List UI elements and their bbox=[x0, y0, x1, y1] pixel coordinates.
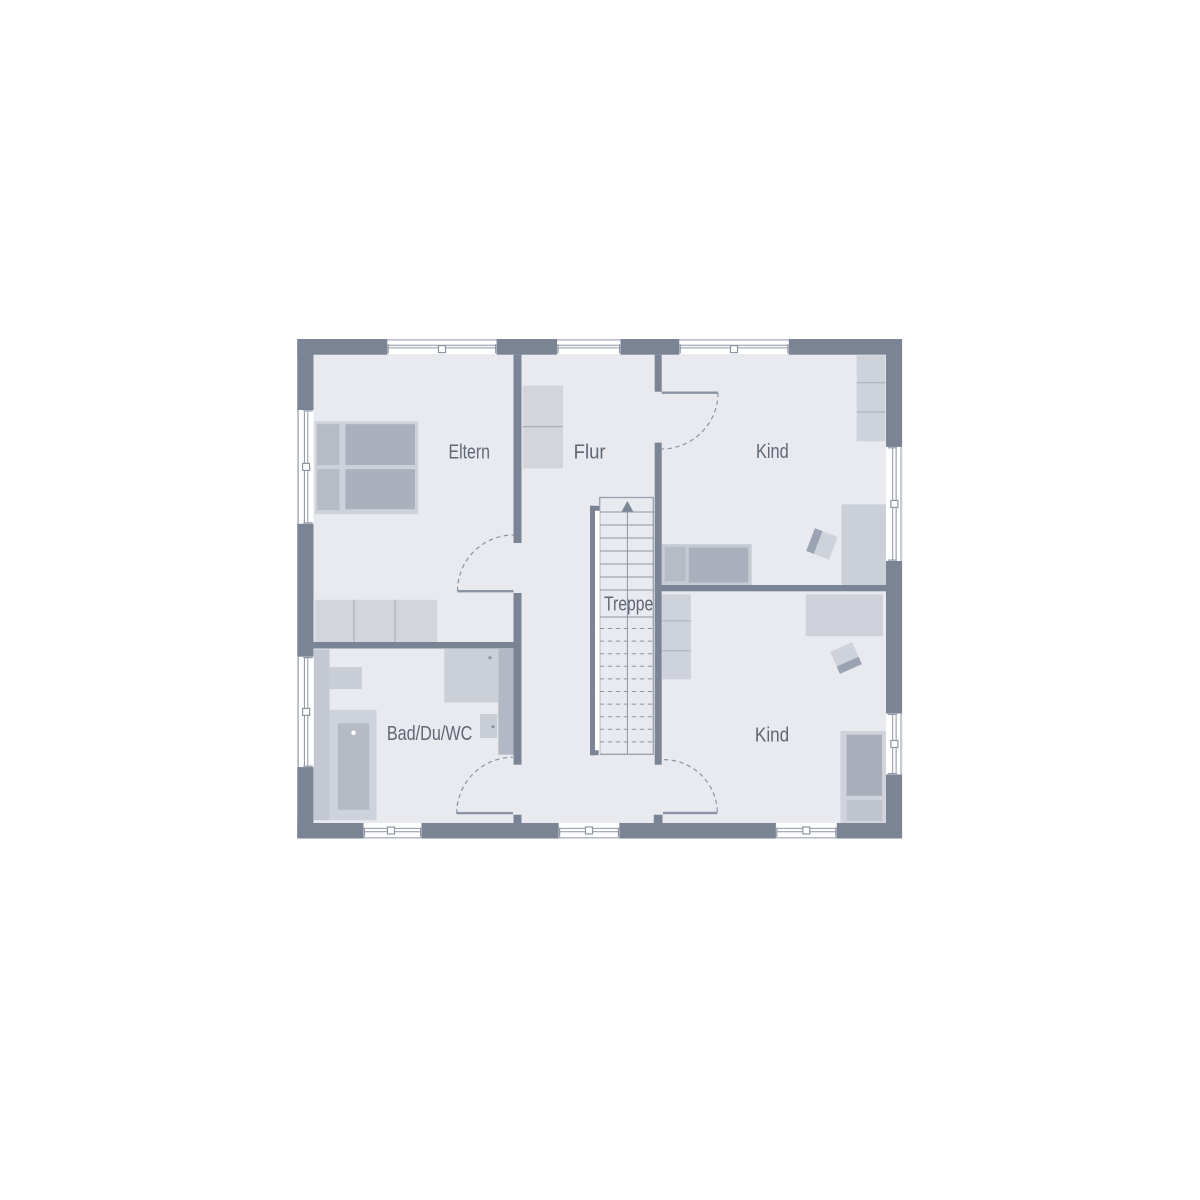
svg-text:Flur: Flur bbox=[574, 441, 606, 464]
svg-text:Eltern: Eltern bbox=[449, 441, 491, 464]
svg-text:Kind: Kind bbox=[756, 440, 789, 463]
svg-text:Bad/Du/WC: Bad/Du/WC bbox=[387, 722, 473, 745]
svg-text:Kind: Kind bbox=[755, 724, 789, 747]
svg-text:Treppe: Treppe bbox=[604, 593, 653, 616]
